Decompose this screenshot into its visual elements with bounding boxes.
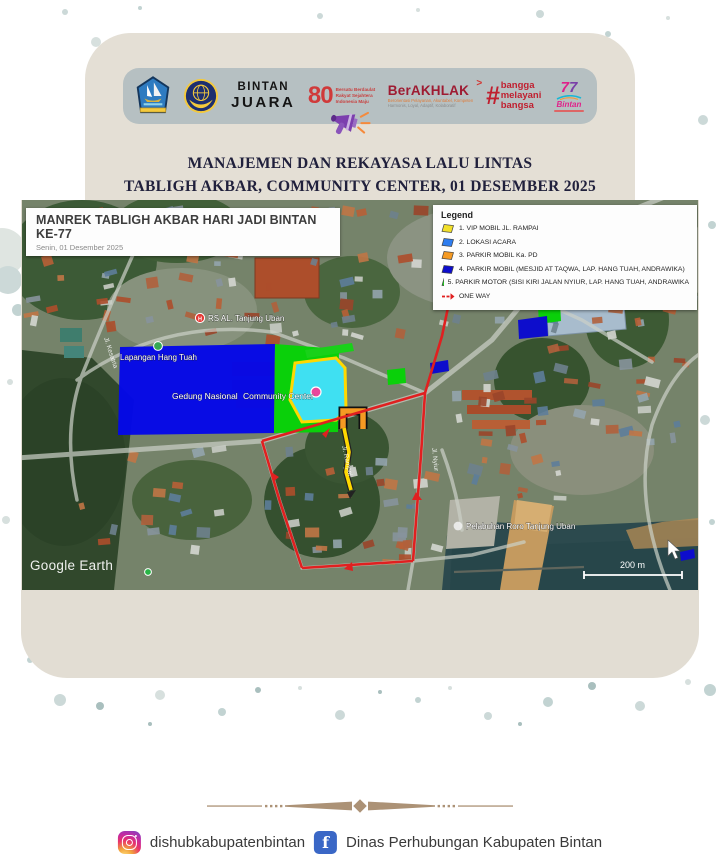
scale-label: 200 m: [620, 560, 645, 570]
legend-item-label: 1. VIP MOBIL JL. RAMPAI: [459, 225, 539, 232]
port-marker-icon: [454, 522, 463, 531]
berakhlak-title: BerAKHLAK: [388, 84, 473, 98]
park-marker-icon: [154, 342, 163, 351]
bintan77-digit2: 7: [569, 79, 577, 96]
berakhlak-subline2: Harmonis, Loyal, Adaptif, Kolaboratif: [388, 104, 473, 108]
satellite-map: H RS AL. Tanjung Uban Lapangan Hang Tuah…: [22, 200, 698, 590]
divider-ornament: [205, 797, 515, 815]
indonesia-80-line3: Indonesia Maju: [336, 99, 376, 105]
legend-swatch-parkir-motor-icon: [441, 277, 444, 288]
legend-item-label: 5. PARKIR MOTOR (SISI KIRI JALAN NYIUR, …: [448, 279, 689, 286]
legend-item-one-way: ONE WAY: [441, 291, 689, 302]
bintan77-name: Bintan: [557, 101, 582, 109]
facebook-name: Dinas Perhubungan Kabupaten Bintan: [346, 834, 602, 851]
bintan-juara-logo: BINTAN JUARA: [231, 82, 295, 110]
legend-swatch-lokasi-icon: [441, 237, 455, 248]
legend-swatch-kapd-icon: [441, 250, 455, 261]
bintan-juara-line2: JUARA: [231, 95, 295, 110]
map-label-port: Pelabuhan Roro Tanjung Uban: [466, 522, 575, 531]
map-label-community: Community Center: [243, 391, 314, 401]
legend-item: 2. LOKASI ACARA: [441, 237, 689, 248]
map-label-gedung: Gedung Nasional: [172, 391, 238, 401]
overlay-parkir-mobil-timur: [518, 316, 548, 339]
google-earth-watermark: Google Earth: [30, 558, 113, 573]
legend-one-way-label: ONE WAY: [459, 293, 490, 300]
map-title-box: MANREK TABLIGH AKBAR HARI JADI BINTAN KE…: [26, 208, 340, 256]
legend-swatch-vip-icon: [441, 223, 455, 234]
legend-swatch-parkir-mobil-icon: [441, 264, 455, 275]
berakhlak-logo: BerAKHLAK > Berorientasi Pelayanan, Akun…: [388, 84, 473, 109]
overlay-parkir-motor-kecil: [387, 368, 406, 385]
legend-item: 1. VIP MOBIL JL. RAMPAI: [441, 223, 689, 234]
hashtag-icon: #: [486, 85, 500, 108]
legend-item: 4. PARKIR MOBIL (MESJID AT TAQWA, LAP. H…: [441, 264, 689, 275]
legend-heading: Legend: [441, 210, 689, 220]
megaphone-icon: [325, 105, 371, 149]
poster-title-line1: MANAJEMEN DAN REKAYASA LALU LINTAS: [85, 152, 635, 175]
legend-item: 3. PARKIR MOBIL Ka. PD: [441, 250, 689, 261]
instagram-handle: dishubkabupatenbintan: [150, 834, 305, 851]
bintan-77-anniversary-logo: 77 Bintan: [554, 80, 584, 113]
streetview-dot-icon: [145, 569, 152, 576]
bintan77-swoosh-icon: [556, 95, 582, 100]
map-subtitle: Senin, 01 Desember 2025: [36, 243, 330, 252]
bangga-word3: bangsa: [501, 101, 542, 111]
facebook-icon: f: [314, 831, 337, 854]
poster-title: MANAJEMEN DAN REKAYASA LALU LINTAS TABLI…: [85, 152, 635, 199]
bintan-juara-line1: BINTAN: [237, 82, 289, 94]
legend-item-label: 2. LOKASI ACARA: [459, 239, 516, 246]
map-title: MANREK TABLIGH AKBAR HARI JADI BINTAN KE…: [36, 213, 330, 241]
legend-item: 5. PARKIR MOTOR (SISI KIRI JALAN NYIUR, …: [441, 277, 689, 288]
poster-title-line2: TABLIGH AKBAR, COMMUNITY CENTER, 01 DESE…: [85, 175, 635, 198]
social-media-row: dishubkabupatenbintan f Dinas Perhubunga…: [118, 831, 602, 854]
hospital-marker-letter: H: [198, 317, 202, 323]
map-legend: Legend 1. VIP MOBIL JL. RAMPAI 2. LOKASI…: [433, 205, 697, 310]
legend-item-label: 3. PARKIR MOBIL Ka. PD: [459, 252, 538, 259]
bintan77-tagline-bar: [554, 110, 584, 112]
bintan77-digit1: 7: [561, 79, 569, 96]
map-label-hospital: RS AL. Tanjung Uban: [208, 314, 284, 323]
poster-top-section: BINTAN JUARA 80 Bersatu Berdaulat Rakyat…: [85, 33, 635, 200]
one-way-icon: [441, 291, 455, 302]
bintan-regency-crest-icon: [136, 76, 170, 116]
instagram-icon: [118, 831, 141, 854]
legend-item-label: 4. PARKIR MOBIL (MESJID AT TAQWA, LAP. H…: [459, 266, 685, 273]
berakhlak-arrow-icon: >: [476, 79, 482, 89]
kemenhub-logo-icon: [183, 78, 219, 114]
map-label-field: Lapangan Hang Tuah: [120, 353, 197, 362]
bangga-melayani-bangsa-logo: # bangga melayani bangsa: [486, 81, 542, 111]
